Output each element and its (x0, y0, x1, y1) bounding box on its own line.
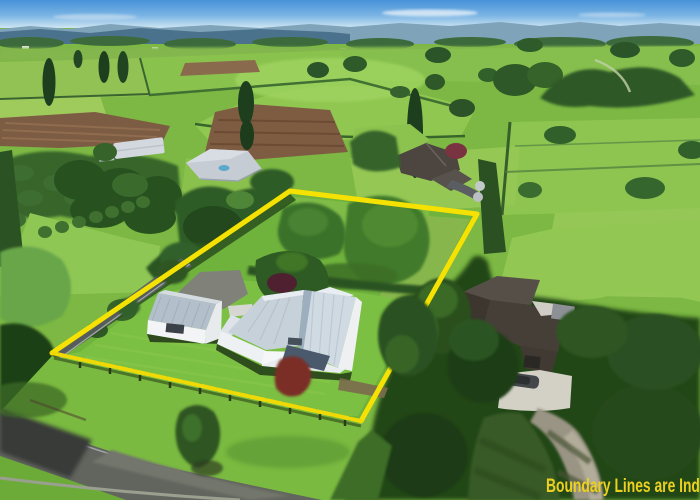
svg-text:Boundary Lines are Indicative: Boundary Lines are Indicative (546, 476, 700, 497)
